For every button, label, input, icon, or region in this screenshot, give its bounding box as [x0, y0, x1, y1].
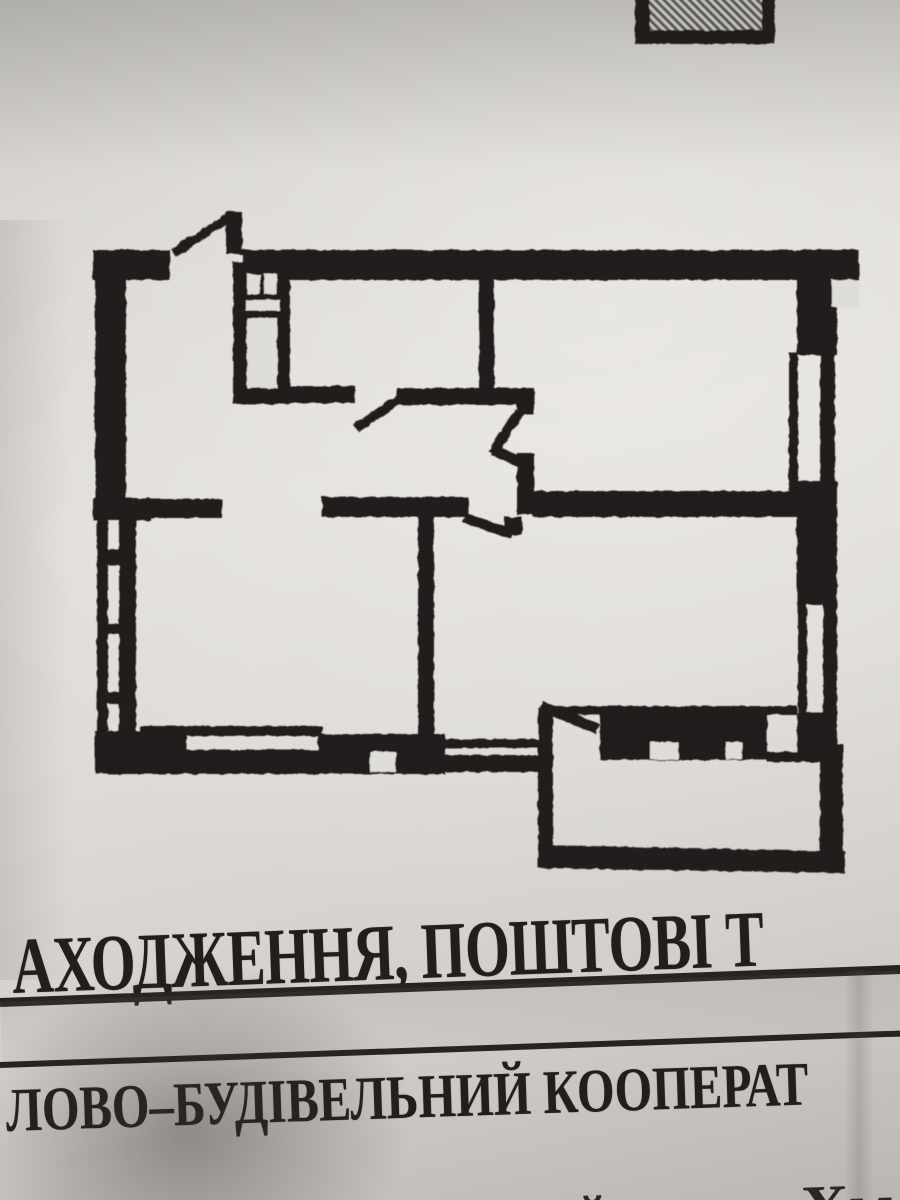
vent-opening — [247, 274, 260, 294]
kitchen-door-leaf — [488, 409, 524, 456]
left-window-wall — [97, 520, 136, 760]
document-photo: АХОДЖЕННЯ, ПОШТОВІ Т ЛОВО–БУДІВЕЛЬНИЙ КО… — [0, 0, 900, 1200]
entrance-door-leaf — [171, 212, 234, 257]
entrance-door — [171, 212, 242, 257]
wall-cutouts — [246, 274, 859, 772]
door-leaves — [353, 394, 524, 539]
hatched-neighbor-plan — [635, 0, 775, 44]
bottom-window-wall — [103, 726, 542, 774]
bathroom-door-leaf — [353, 394, 406, 432]
interior-walls — [126, 264, 797, 740]
bottom-text-fragment: Хме — [800, 1168, 900, 1200]
floor-plan-walls — [93, 212, 859, 873]
vent-opening — [247, 318, 277, 388]
bottom-text-fragment: м. — [736, 1182, 785, 1200]
vent-opening — [246, 300, 280, 311]
bottom-text-fragment: й — [578, 1185, 608, 1200]
vent-opening — [264, 274, 277, 294]
bottom-text-fragment: п — [644, 1188, 674, 1200]
